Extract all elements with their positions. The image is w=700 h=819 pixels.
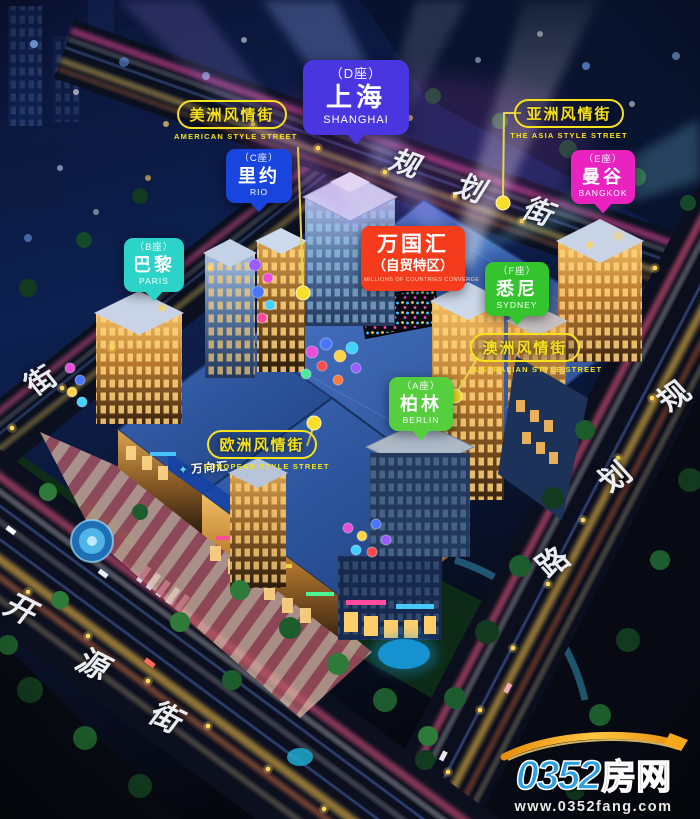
building-f-name: 悉尼	[489, 279, 545, 300]
building-e-name-en: BANGKOK	[575, 189, 631, 199]
building-c-code: （C座）	[230, 154, 288, 165]
building-c-name: 里约	[230, 166, 288, 187]
mall-logo-star-icon: ✦	[177, 462, 189, 477]
street-american-en: AMERICAN STYLE STREET	[174, 132, 290, 141]
building-b-code: （B座）	[128, 243, 180, 254]
label-building-e: （E座） 曼谷 BANGKOK	[571, 150, 635, 204]
project-title-en: MILLIONS OF COUNTRIES CONVERGE	[364, 277, 462, 283]
street-australian-zh: 澳洲风情街	[470, 333, 579, 362]
label-building-a: （A座） 柏林 BERLIN	[389, 377, 453, 431]
project-subtitle: （自贸特区）	[364, 258, 462, 274]
street-american-zh: 美洲风情街	[177, 100, 286, 129]
building-a-name: 柏林	[393, 394, 449, 415]
building-a-code: （A座）	[393, 382, 449, 393]
label-building-d: （D座） 上海 SHANGHAI	[303, 60, 409, 135]
building-e-name: 曼谷	[575, 167, 631, 188]
street-label-american: 美洲风情街 AMERICAN STYLE STREET	[174, 100, 290, 141]
building-d-name-en: SHANGHAI	[309, 114, 403, 127]
label-building-f: （F座） 悉尼 SYDNEY	[485, 262, 549, 316]
building-d-code: （D座）	[309, 67, 403, 82]
building-a-name-en: BERLIN	[393, 416, 449, 426]
watermark-brand-number: 0352	[516, 755, 599, 796]
street-australian-en: AUSTRALIAN STYLE STREET	[468, 365, 582, 374]
street-asia-en: THE ASIA STYLE STREET	[510, 131, 628, 140]
label-building-b: （B座） 巴黎 PARIS	[124, 238, 184, 292]
building-b-name-en: PARIS	[128, 277, 180, 287]
street-asia-zh: 亚洲风情街	[514, 99, 623, 128]
street-label-asia: 亚洲风情街 THE ASIA STYLE STREET	[510, 99, 628, 140]
watermark-brand-zh: 房网	[601, 760, 671, 795]
street-label-australian: 澳洲风情街 AUSTRALIAN STYLE STREET	[468, 333, 582, 374]
building-f-name-en: SYDNEY	[489, 301, 545, 311]
building-f-code: （F座）	[489, 267, 545, 278]
street-label-european: 欧洲风情街 EUROPEAN STYLE STREET	[204, 430, 320, 471]
building-d-name: 上海	[309, 83, 403, 113]
street-european-zh: 欧洲风情街	[207, 430, 316, 459]
building-e-code: （E座）	[575, 155, 631, 166]
watermark: 0352 房网 www.0352fang.com	[491, 725, 696, 815]
label-center-project: 万国汇 （自贸特区） MILLIONS OF COUNTRIES CONVERG…	[361, 226, 465, 291]
label-building-c: （C座） 里约 RIO	[226, 149, 292, 203]
aerial-render-page: （D座） 上海 SHANGHAI （C座） 里约 RIO （E座） 曼谷 BAN…	[0, 0, 700, 819]
project-title: 万国汇	[364, 233, 462, 257]
building-b-name: 巴黎	[128, 255, 180, 276]
street-european-en: EUROPEAN STYLE STREET	[204, 462, 320, 471]
watermark-url: www.0352fang.com	[491, 799, 696, 815]
building-c-name-en: RIO	[230, 188, 288, 198]
